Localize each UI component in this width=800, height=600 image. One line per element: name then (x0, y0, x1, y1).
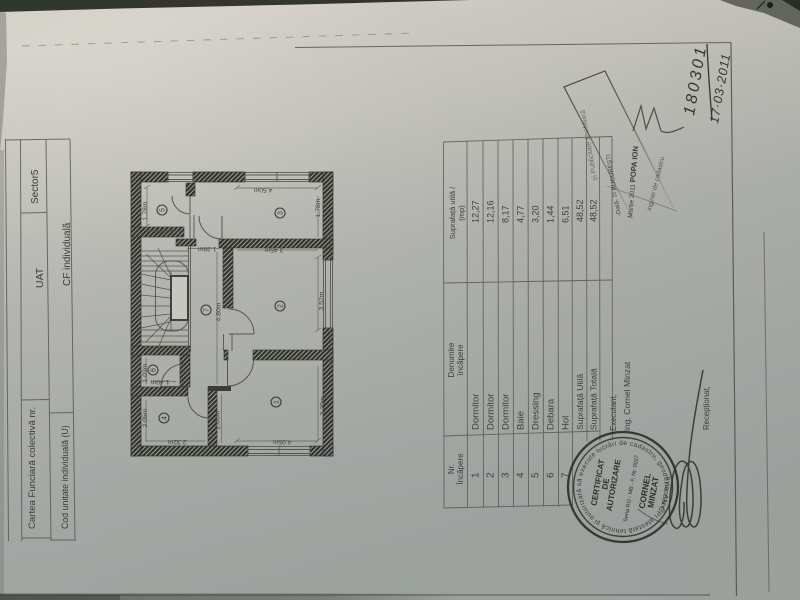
svg-text:Nr.: Nr. (447, 464, 456, 474)
svg-text:3.52m: 3.52m (319, 291, 326, 310)
svg-text:Suprafață Totală: Suprafață Totală (589, 368, 599, 430)
svg-text:1.50m: 1.50m (154, 228, 173, 235)
svg-text:3: 3 (501, 472, 512, 478)
svg-text:CF individuală: CF individuală (62, 222, 73, 286)
svg-text:2: 2 (278, 304, 285, 308)
svg-text:Denumire: Denumire (447, 342, 456, 377)
svg-text:1: 1 (274, 400, 281, 404)
svg-text:încăpere: încăpere (456, 344, 465, 377)
svg-text:Cod unitate individuală (U): Cod unitate individuală (U) (60, 425, 70, 529)
svg-text:2: 2 (486, 472, 497, 478)
svg-text:4: 4 (516, 472, 527, 478)
svg-text:1.38m: 1.38m (197, 245, 216, 252)
svg-text:Executant,: Executant, (609, 394, 618, 431)
svg-text:3.20m: 3.20m (320, 396, 327, 415)
svg-text:2.05m: 2.05m (215, 410, 222, 429)
svg-text:Dormitor: Dormitor (486, 394, 497, 430)
svg-text:2.32m: 2.32m (167, 438, 186, 445)
svg-text:(mp): (mp) (457, 205, 466, 221)
svg-text:4.05m: 4.05m (272, 438, 291, 445)
svg-text:4.50m: 4.50m (253, 186, 272, 193)
svg-text:4: 4 (162, 416, 169, 420)
svg-text:1,44: 1,44 (546, 205, 556, 223)
svg-text:3.45m: 3.45m (264, 246, 283, 253)
svg-text:Baie: Baie (516, 411, 527, 430)
svg-text:5: 5 (531, 472, 542, 478)
svg-text:Recepționat,: Recepționat, (702, 386, 711, 430)
svg-text:Sector5: Sector5 (30, 169, 41, 204)
svg-text:Dormitor: Dormitor (471, 394, 482, 430)
svg-text:Suprafață utilă /: Suprafață utilă / (448, 186, 457, 239)
svg-text:6,51: 6,51 (561, 205, 571, 223)
svg-text:4.80m: 4.80m (216, 302, 223, 321)
svg-text:12,16: 12,16 (486, 200, 496, 223)
svg-text:Debara: Debara (546, 398, 557, 430)
svg-text:6: 6 (151, 368, 158, 372)
svg-text:1.40m: 1.40m (150, 378, 169, 385)
svg-text:Dressing: Dressing (531, 393, 542, 431)
svg-text:4,77: 4,77 (516, 205, 526, 223)
svg-text:1.78m: 1.78m (315, 198, 322, 217)
svg-text:12,27: 12,27 (471, 200, 481, 223)
svg-text:ing. Cornel Minzat: ing. Cornel Minzat (622, 361, 632, 431)
svg-text:Cartea Funciară colectivă nr.: Cartea Funciară colectivă nr. (27, 407, 38, 529)
svg-text:UAT: UAT (34, 267, 46, 288)
svg-text:48,52: 48,52 (589, 199, 599, 222)
svg-text:6: 6 (546, 472, 557, 478)
svg-text:1.03m: 1.03m (142, 363, 149, 382)
svg-text:Suprafață Utilă: Suprafață Utilă (575, 374, 585, 430)
svg-text:8,17: 8,17 (501, 205, 511, 223)
svg-text:3: 3 (278, 211, 285, 215)
svg-text:Dormitor: Dormitor (501, 394, 512, 430)
svg-text:7: 7 (204, 308, 211, 312)
svg-text:3,20: 3,20 (531, 205, 541, 223)
svg-text:2.05m: 2.05m (142, 408, 149, 427)
svg-text:Încăpere: Încăpere (456, 453, 465, 486)
svg-text:Hol: Hol (561, 416, 572, 430)
svg-text:1.78m: 1.78m (142, 201, 149, 220)
svg-text:1: 1 (471, 472, 482, 478)
svg-text:48,52: 48,52 (575, 199, 585, 222)
svg-text:5: 5 (160, 208, 167, 212)
